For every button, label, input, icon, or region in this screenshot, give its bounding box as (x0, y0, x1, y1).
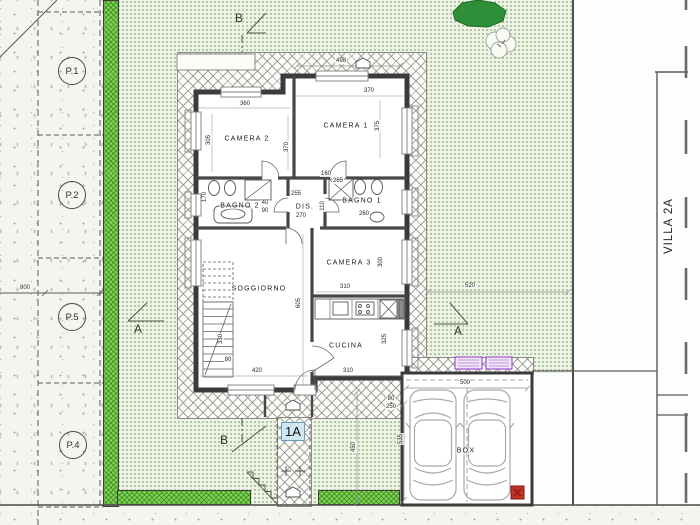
room-label-camera-2: CAMERA 2 (224, 136, 271, 143)
room-label-camera-3: CAMERA 3 (326, 260, 373, 267)
dimension-label: 300 (378, 256, 384, 268)
dimension-label: 250 (385, 404, 397, 410)
dimension-label: 80 (387, 396, 396, 402)
room-label-bagno-2: BAGNO 2 (219, 203, 261, 210)
dimension-label: 160 (320, 171, 332, 177)
dimension-label: 370 (284, 141, 290, 153)
parking-stall-p-5: P.5 (58, 303, 86, 331)
dimension-label: 255 (290, 191, 302, 197)
parking-stall-p-4: P.4 (59, 431, 87, 459)
dimension-label: 270 (295, 213, 307, 219)
dimension-label: 90 (261, 208, 270, 214)
dimension-label: 170 (202, 191, 208, 203)
section-marker-a: A (454, 324, 462, 338)
dimension-label: 498 (335, 58, 347, 64)
dimension-label: 310 (342, 368, 354, 374)
section-marker-b: B (220, 433, 228, 447)
room-label-bagno-1: BAGNO 1 (341, 198, 383, 205)
dimension-label: 80 (224, 357, 233, 363)
parking-stall-p-1: P.1 (58, 57, 86, 85)
dimension-label: 330 (218, 333, 224, 345)
room-label-dis: DIS. (295, 204, 315, 211)
room-label-soggiorno: SOGGIORNO (231, 286, 288, 293)
section-marker-b: B (235, 11, 243, 25)
section-marker-a: A (134, 322, 142, 336)
dimension-label: 265 (332, 178, 344, 184)
parking-stall-label: P.5 (65, 312, 78, 323)
dimension-label: 420 (251, 368, 263, 374)
dimension-label: 800 (19, 285, 31, 291)
floor-plan: 1A VILLA 2A CAMERA 2CAMERA 1BAGNO 2DIS.B… (0, 0, 700, 525)
dimension-label: 360 (239, 101, 251, 107)
dimension-label: 450 (351, 441, 357, 453)
parking-stall-p-2: P.2 (58, 181, 86, 209)
dimension-label: 535 (398, 433, 404, 445)
dimension-label: 305 (206, 134, 212, 146)
parking-stall-label: P.1 (65, 66, 78, 77)
dimension-label: 325 (382, 333, 388, 345)
dimension-label: 605 (296, 297, 302, 309)
unit-badge: 1A (281, 422, 305, 441)
parking-stall-label: P.4 (66, 440, 79, 451)
villa-label: VILLA 2A (663, 198, 675, 254)
parking-stall-label: P.2 (65, 190, 78, 201)
dimension-label: 370 (363, 88, 375, 94)
labels-layer: 1A VILLA 2A CAMERA 2CAMERA 1BAGNO 2DIS.B… (0, 0, 700, 525)
dimension-label: 500 (459, 380, 471, 386)
dimension-label: 110 (320, 200, 326, 212)
dimension-label: 375 (375, 120, 381, 132)
room-label-box: BOX (456, 448, 476, 455)
dimension-label: 520 (464, 283, 476, 289)
dimension-label: 40 (261, 200, 270, 206)
room-label-camera-1: CAMERA 1 (323, 123, 370, 130)
dimension-label: 260 (358, 211, 370, 217)
room-label-cucina: CUCINA (328, 343, 364, 350)
dimension-label: 310 (339, 284, 351, 290)
